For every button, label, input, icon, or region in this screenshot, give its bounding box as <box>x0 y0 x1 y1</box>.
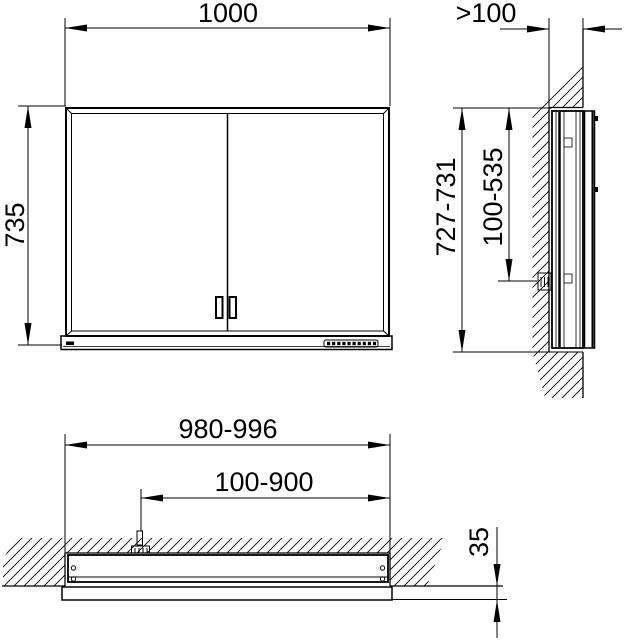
shelf-clip <box>564 274 572 283</box>
mirror-door-plan <box>62 587 392 600</box>
cutout-width-label: 980-996 <box>178 414 277 444</box>
brand-mark <box>66 342 74 346</box>
arrowhead <box>506 259 513 281</box>
arrowhead <box>368 495 390 502</box>
protrusion-label: 35 <box>464 527 494 557</box>
drawing-canvas: 1000 735 <box>0 0 624 640</box>
arrowhead <box>141 495 163 502</box>
arrowhead <box>494 600 501 622</box>
arrowhead <box>25 106 32 128</box>
side-cabinet-section <box>552 111 598 348</box>
arrowhead <box>368 442 390 449</box>
arrowhead <box>459 330 466 352</box>
control-button <box>353 342 356 345</box>
arrowhead <box>506 108 513 130</box>
arrowhead <box>494 564 501 586</box>
protrusion-dimension: 35 <box>464 527 501 638</box>
front-height-dimension: 735 <box>0 106 66 345</box>
arrowhead <box>583 26 605 33</box>
niche-depth-dimension: >100 <box>456 0 622 108</box>
hinge-mark <box>595 187 599 192</box>
connection-range-label: 100-900 <box>214 467 313 497</box>
hatch-area <box>533 108 550 353</box>
control-button <box>337 342 340 345</box>
control-buttons <box>327 342 376 345</box>
front-width-dimension: 1000 <box>65 0 390 106</box>
hatch-area <box>540 64 583 108</box>
arrowhead <box>65 25 87 32</box>
control-button <box>358 342 361 345</box>
control-button <box>332 342 335 345</box>
arrowhead <box>65 442 87 449</box>
right-door-handle <box>230 297 237 318</box>
front-view: 1000 735 <box>0 0 392 350</box>
arrowhead <box>459 108 466 130</box>
control-button <box>347 342 350 345</box>
connection-range-dimension: 100-900 <box>141 467 390 531</box>
hinge-mark <box>595 116 599 121</box>
side-view: >100 727-731 100-535 <box>431 0 622 398</box>
front-cabinet <box>61 108 392 350</box>
mounting-hole <box>380 566 384 570</box>
control-button <box>342 342 345 345</box>
front-height-label: 735 <box>0 202 30 247</box>
niche-depth-label: >100 <box>456 0 517 28</box>
technical-drawing: 1000 735 <box>0 0 624 640</box>
plan-cabinet-body <box>62 555 507 600</box>
side-height-label: 727-731 <box>431 157 461 256</box>
cutout-width-dimension: 980-996 <box>65 414 390 586</box>
connection-height-dimension: 100-535 <box>478 108 537 281</box>
mounting-hole <box>71 566 75 570</box>
left-door-handle <box>216 297 223 318</box>
plan-view: 980-996 100-900 <box>2 414 507 638</box>
control-button <box>373 342 376 345</box>
hatch-area <box>3 538 445 586</box>
cabinet-body-plan <box>68 555 388 582</box>
control-button <box>368 342 371 345</box>
control-button <box>327 342 330 345</box>
arrowhead <box>25 323 32 345</box>
connection-height-label: 100-535 <box>478 147 508 246</box>
control-button <box>363 342 366 345</box>
arrowhead <box>368 25 390 32</box>
hatch-area <box>533 352 584 398</box>
front-width-label: 1000 <box>198 0 258 28</box>
arrowhead <box>527 26 549 33</box>
shelf-clip <box>564 138 572 147</box>
